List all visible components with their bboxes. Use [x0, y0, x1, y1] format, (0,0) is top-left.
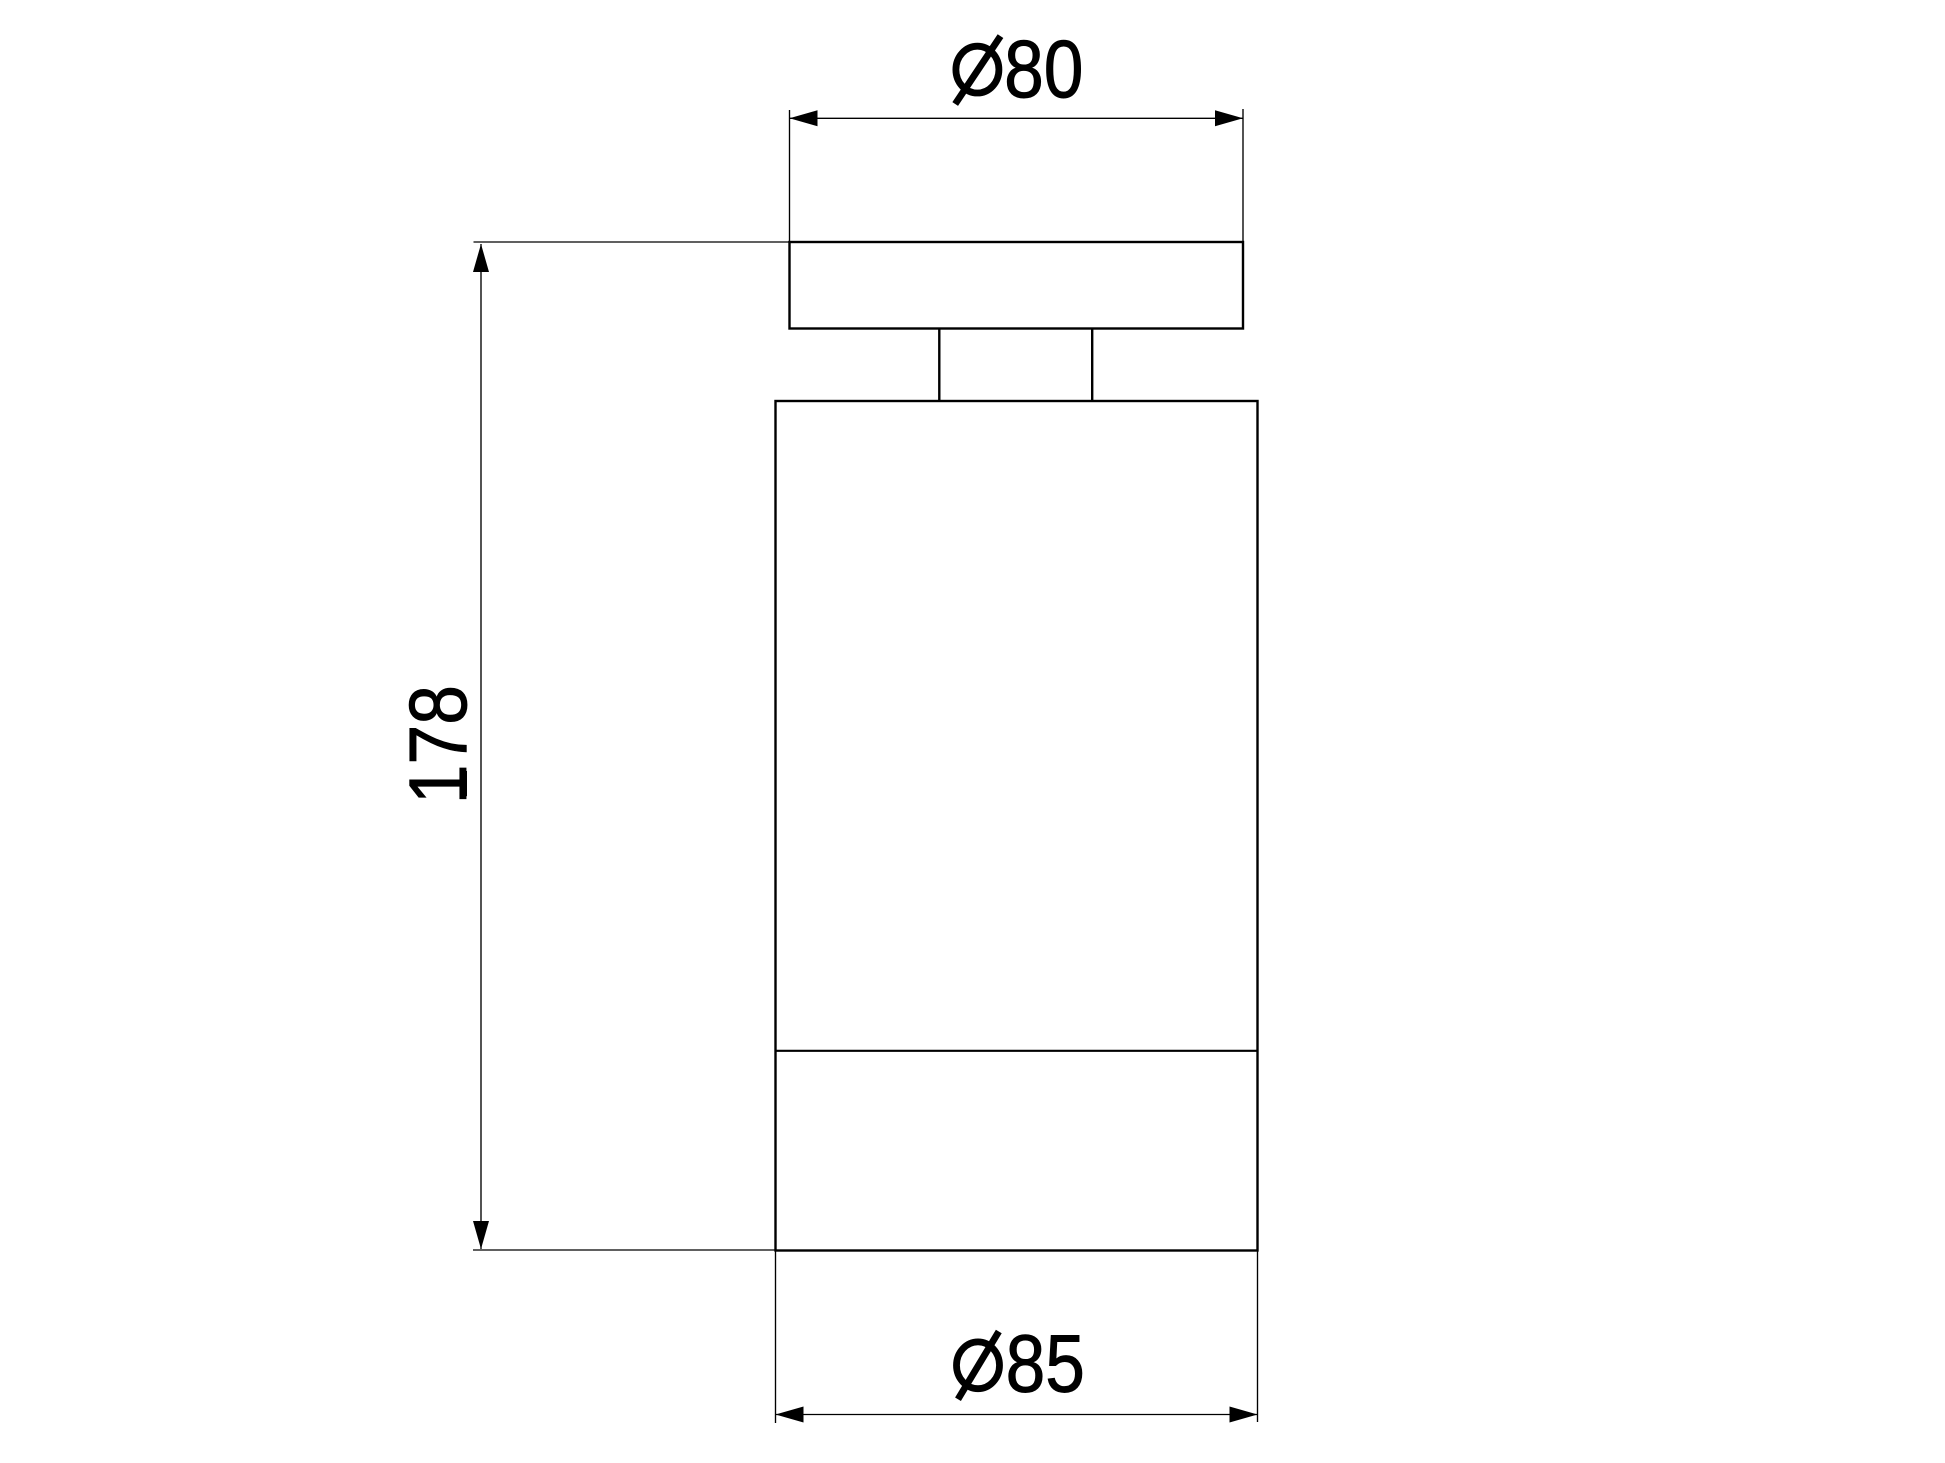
- svg-text:85: 85: [1006, 1319, 1085, 1409]
- svg-text:178: 178: [394, 685, 484, 804]
- svg-text:80: 80: [1004, 25, 1083, 115]
